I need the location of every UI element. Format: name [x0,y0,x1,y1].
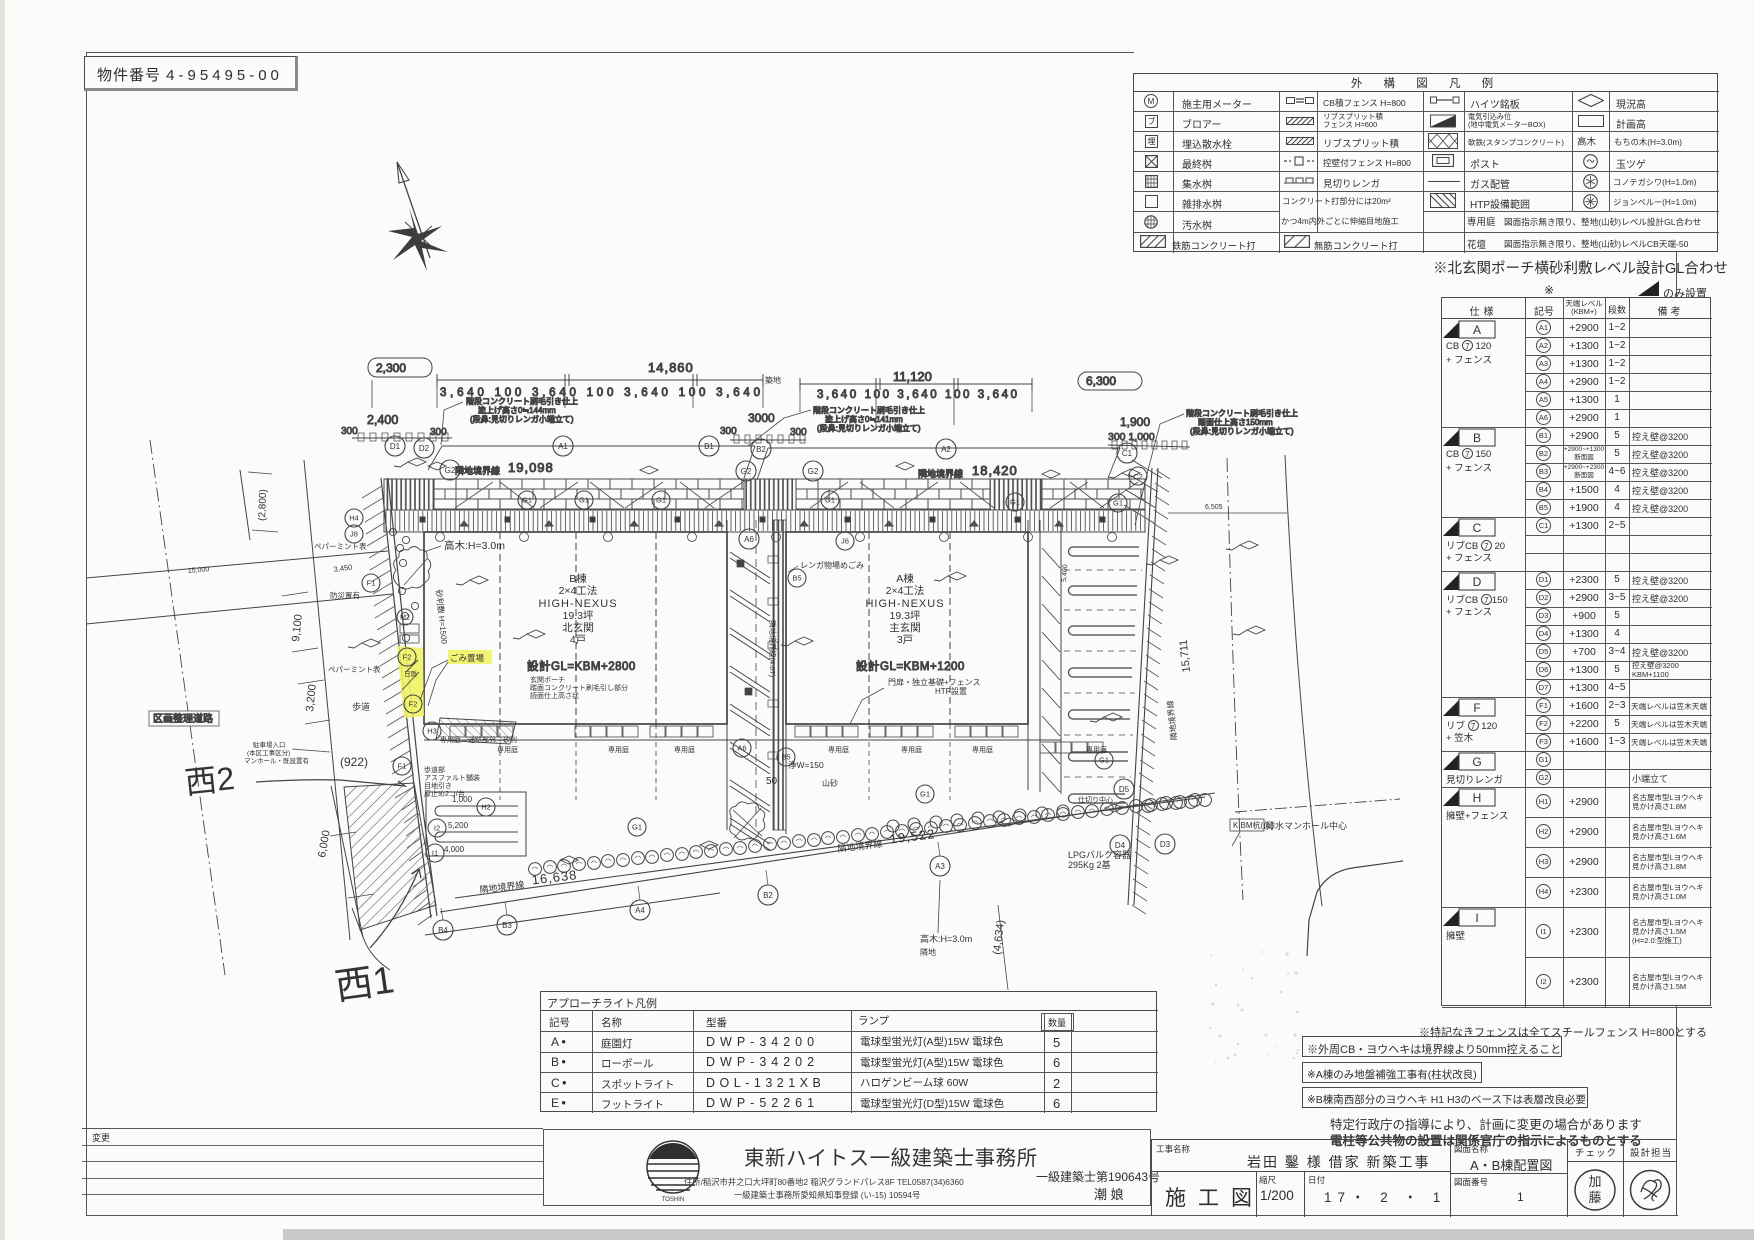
svg-text:HIGH-NEXUS: HIGH-NEXUS [865,598,944,610]
svg-text:隣地境界線: 隣地境界線 [918,468,963,479]
svg-text:D: D [1473,575,1482,589]
svg-text:(段鼻:見切りレンガ小端立て): (段鼻:見切りレンガ小端立て) [470,414,574,424]
svg-text:16,638: 16,638 [531,867,578,887]
svg-text:295Kg 2基: 295Kg 2基 [1068,859,1111,870]
svg-text:3戸: 3戸 [897,634,913,646]
svg-text:D3: D3 [1160,840,1171,849]
svg-text:2×4工法: 2×4工法 [886,584,925,597]
svg-text:専用庭: 専用庭 [972,745,993,754]
svg-text:専用庭→通路部分→砂利: 専用庭→通路部分→砂利 [440,735,517,744]
svg-text:目地引き: 目地引き [424,781,452,790]
svg-text:築地: 築地 [765,375,781,385]
svg-text:19.3坪: 19.3坪 [563,609,594,622]
svg-text:H: H [1473,791,1482,805]
svg-text:読面仕上高さ状: 読面仕上高さ状 [530,691,579,700]
svg-text:(922): (922) [340,755,368,769]
svg-text:A6: A6 [744,535,754,544]
svg-text:隣地: 隣地 [920,947,936,957]
svg-text:歩道部: 歩道部 [424,765,445,774]
svg-text:西2: 西2 [183,760,236,801]
svg-text:マンホール・既設置有: マンホール・既設置有 [244,756,310,765]
svg-text:B1: B1 [704,442,714,451]
svg-text:G2: G2 [808,467,819,476]
svg-text:C2: C2 [1133,472,1143,481]
svg-text:D2: D2 [419,444,430,453]
svg-text:門扉・独立基礎+フェンス: 門扉・独立基礎+フェンス [888,677,981,687]
svg-text:HIGH-NEXUS: HIGH-NEXUS [538,598,617,610]
svg-text:4,000: 4,000 [444,845,465,854]
svg-text:F: F [1473,701,1480,715]
svg-text:高木:H=3.0m: 高木:H=3.0m [444,539,505,552]
svg-text:G2: G2 [741,467,752,476]
svg-text:F2: F2 [403,653,412,662]
svg-text:A2: A2 [941,445,951,454]
svg-text:ごみ置場: ごみ置場 [450,653,485,663]
svg-text:階段コンクリート刷毛引き仕上: 階段コンクリート刷毛引き仕上 [1186,408,1298,418]
svg-text:C1: C1 [1122,449,1133,458]
svg-text:専用庭: 専用庭 [608,745,629,754]
svg-text:西1: 西1 [332,959,396,1009]
svg-text:15,711: 15,711 [1178,639,1193,673]
svg-text:歩道: 歩道 [352,701,370,712]
svg-text:G1: G1 [920,790,930,799]
svg-text:日隠: 日隠 [404,669,418,678]
svg-text:B2: B2 [756,445,766,454]
svg-text:A1: A1 [558,442,568,451]
svg-text:3,200: 3,200 [304,684,319,713]
svg-text:藤: 藤 [1588,1190,1601,1205]
svg-text:2,300: 2,300 [376,361,406,375]
svg-text:J6: J6 [841,537,849,546]
svg-text:6,000: 6,000 [316,829,333,858]
svg-text:D5: D5 [1119,785,1130,794]
svg-text:5,400: 5,400 [1061,564,1069,582]
svg-text:B: B [1473,431,1481,445]
svg-text:15,000: 15,000 [188,566,210,575]
svg-text:玄関ポーチ: 玄関ポーチ [530,675,565,684]
svg-text:北玄関: 北玄関 [562,621,594,634]
svg-text:G1: G1 [632,823,642,832]
svg-text:砂利敷 H=1500: 砂利敷 H=1500 [434,589,450,645]
svg-text:ペパーミント表: ペパーミント表 [314,541,367,551]
svg-text:B2: B2 [763,891,773,900]
svg-text:設計GL=KBM+2800: 設計GL=KBM+2800 [527,659,636,673]
svg-text:(段鼻:見切りレンガ小端立て): (段鼻:見切りレンガ小端立て) [817,423,921,433]
svg-text:階段コンクリート刷毛引き仕上: 階段コンクリート刷毛引き仕上 [466,396,578,406]
svg-text:I1: I1 [432,849,438,858]
svg-text:排水マンホール中心: 排水マンホール中心 [1266,820,1347,831]
svg-text:B5: B5 [792,574,801,583]
svg-text:B棟: B棟 [569,572,587,585]
svg-text:(本区工事区分): (本区工事区分) [247,748,290,757]
svg-text:アスファルト舗装: アスファルト舗装 [424,773,480,782]
svg-text:B5: B5 [781,753,790,762]
svg-text:1,900: 1,900 [1120,415,1150,429]
svg-text:専用庭: 専用庭 [901,745,922,754]
svg-text:塗上げ高さ0≒141mm: 塗上げ高さ0≒141mm [825,414,903,424]
svg-text:G1: G1 [1113,499,1123,508]
svg-text:A: A [1473,323,1481,337]
svg-text:専用庭: 専用庭 [828,745,849,754]
svg-text:300: 300 [720,426,737,437]
svg-text:2,400: 2,400 [367,413,398,427]
svg-text:3000: 3000 [748,411,775,425]
svg-text:塗上げ高さ0≒144mm: 塗上げ高さ0≒144mm [478,405,556,415]
svg-text:3,450: 3,450 [333,562,353,574]
svg-text:50: 50 [766,776,778,787]
svg-text:G1: G1 [579,496,589,505]
svg-text:(4,634): (4,634) [991,919,1007,955]
svg-text:300: 300 [790,427,807,438]
svg-text:I2: I2 [434,824,440,833]
svg-text:G1: G1 [1010,498,1020,507]
svg-text:3,640 100 3,640 100 3,640: 3,640 100 3,640 100 3,640 [817,389,1017,401]
svg-text:加: 加 [1588,1174,1601,1189]
svg-text:D4: D4 [1115,841,1126,850]
svg-text:踏面仕上高さ150mm: 踏面仕上高さ150mm [1198,417,1273,427]
svg-text:G: G [1472,755,1481,769]
svg-text:A6: A6 [737,744,746,753]
svg-text:ペパーミント表: ペパーミント表 [328,664,381,674]
svg-text:F1: F1 [398,762,407,771]
svg-text:B3: B3 [502,921,512,930]
svg-text:階段コンクリート刷毛引き仕上: 階段コンクリート刷毛引き仕上 [813,405,925,415]
svg-text:4戸: 4戸 [570,634,586,646]
svg-text:11,120: 11,120 [893,369,932,384]
svg-text:(2,800): (2,800) [257,489,269,521]
svg-text:区画整理道路: 区画整理道路 [153,712,213,725]
svg-text:G1: G1 [522,496,532,505]
svg-text:隣地境界線: 隣地境界線 [837,838,883,854]
svg-text:I: I [1475,911,1478,925]
svg-text:厚止め2コ/台: 厚止め2コ/台 [424,789,465,798]
svg-text:設計GL=KBM+1200: 設計GL=KBM+1200 [856,659,965,673]
svg-text:A3: A3 [935,862,945,871]
svg-text:B4: B4 [438,926,448,935]
svg-text:300: 300 [341,426,358,437]
svg-text:専用庭: 専用庭 [674,745,695,754]
svg-text:隣地境界線: 隣地境界線 [1165,700,1179,741]
svg-text:19,098: 19,098 [508,460,554,475]
svg-text:隣地境界線(4.07): 隣地境界線(4.07) [768,620,778,678]
svg-text:HTP設置: HTP設置 [935,686,967,696]
svg-text:2×4工法: 2×4工法 [559,584,598,597]
svg-text:A4: A4 [635,906,645,915]
svg-text:(段鼻:見切りレンガ小端立て): (段鼻:見切りレンガ小端立て) [1190,426,1294,436]
svg-text:駐車場入口: 駐車場入口 [253,740,286,749]
svg-text:H2: H2 [481,803,491,812]
svg-text:300: 300 [430,427,447,438]
svg-text:主玄関: 主玄関 [889,621,921,634]
svg-text:5,200: 5,200 [448,821,469,830]
svg-text:18,420: 18,420 [972,463,1018,478]
svg-text:14,860: 14,860 [648,360,694,375]
svg-text:防災置有: 防災置有 [330,590,360,600]
svg-text:G1: G1 [656,496,666,505]
svg-text:H4: H4 [349,514,359,523]
svg-text:F2: F2 [409,700,418,709]
svg-text:高木:H=3.0m: 高木:H=3.0m [920,933,972,944]
svg-text:C: C [1473,521,1482,535]
svg-text:隣地境界線: 隣地境界線 [479,879,525,895]
svg-text:専用庭: 専用庭 [1086,745,1107,754]
svg-text:G1: G1 [1099,756,1109,765]
svg-text:6,300: 6,300 [1086,374,1116,388]
svg-text:G1: G1 [825,496,835,505]
svg-text:TOSHIN: TOSHIN [662,1197,685,1202]
svg-text:M2: M2 [400,615,410,622]
svg-text:J8: J8 [350,530,358,539]
svg-text:H3: H3 [427,727,437,736]
svg-text:6,505: 6,505 [1205,504,1223,511]
svg-text:レンガ物場めごみ: レンガ物場めごみ [800,560,864,570]
svg-text:踏面コンクリート刷毛引し部分: 踏面コンクリート刷毛引し部分 [530,683,628,692]
svg-text:19.3坪: 19.3坪 [890,609,921,622]
svg-text:隣地境界線: 隣地境界線 [455,465,500,476]
svg-text:A棟: A棟 [896,572,914,585]
svg-text:F1: F1 [367,579,376,588]
svg-text:9,100: 9,100 [290,614,305,643]
svg-text:D1: D1 [390,442,401,451]
svg-text:山砂: 山砂 [822,778,838,788]
